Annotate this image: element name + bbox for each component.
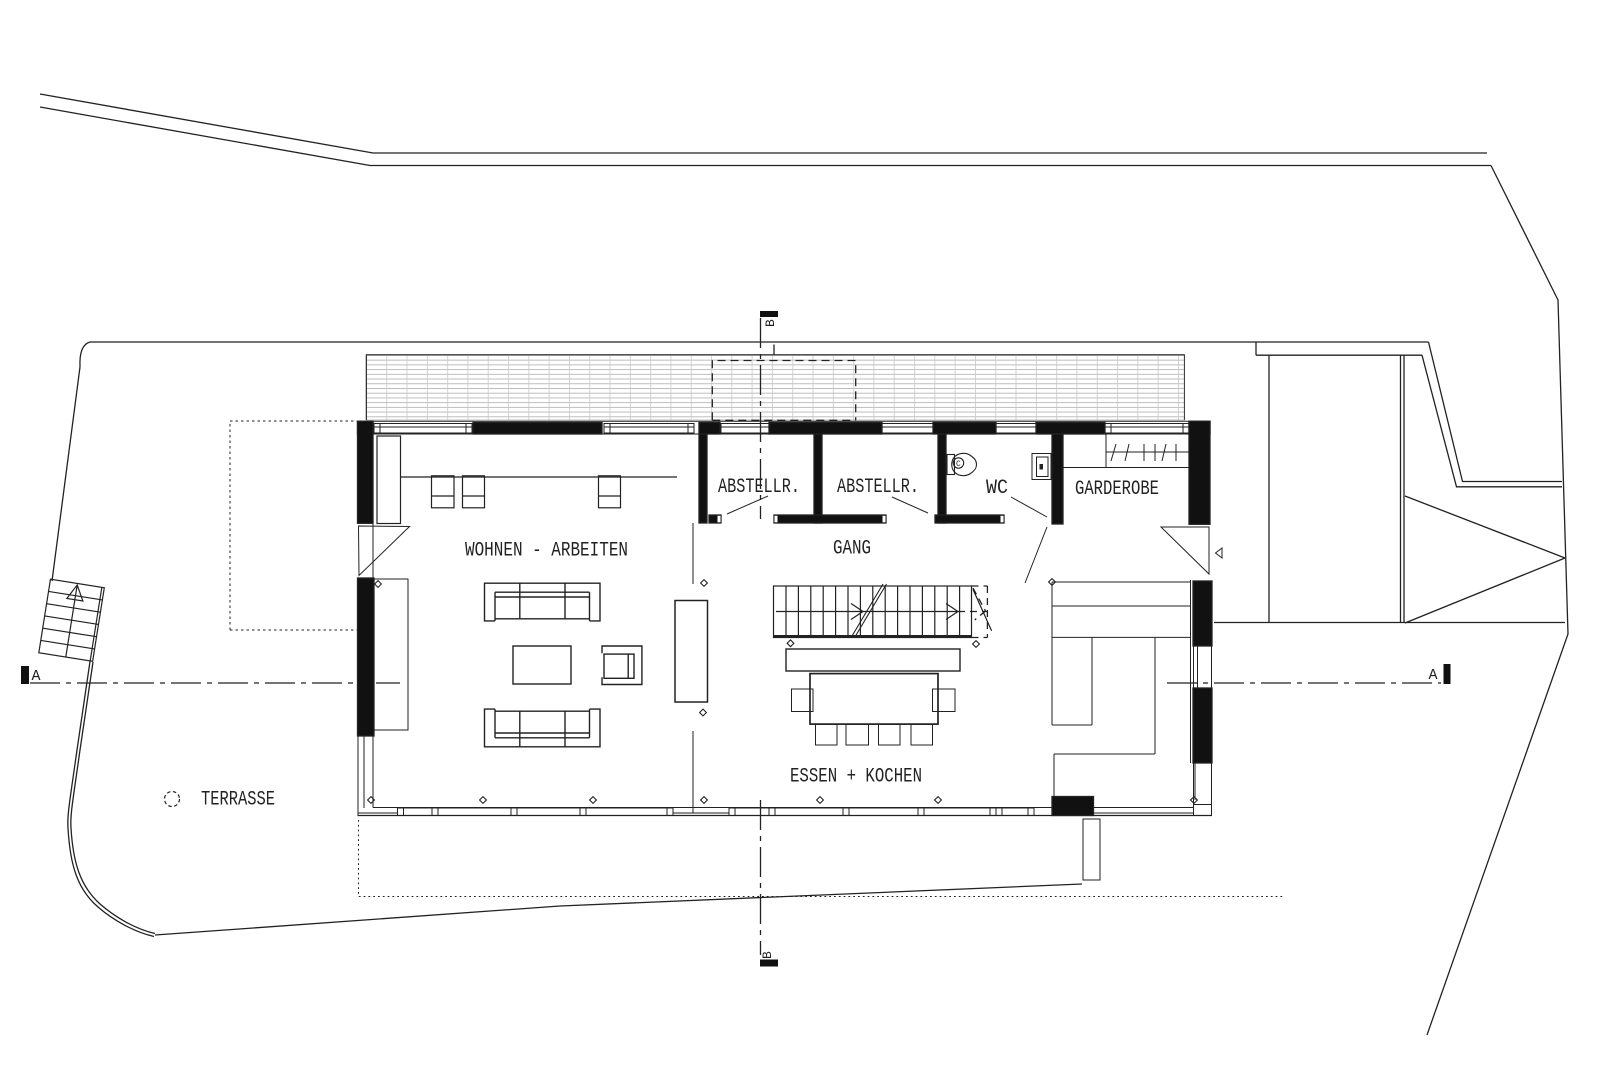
svg-text:A: A — [1429, 667, 1438, 684]
svg-text:ABSTELLR.: ABSTELLR. — [718, 476, 800, 499]
svg-text:ABSTELLR.: ABSTELLR. — [837, 476, 919, 499]
svg-text:WOHNEN - ARBEITEN: WOHNEN - ARBEITEN — [465, 540, 628, 563]
svg-text:WC: WC — [986, 477, 1008, 500]
svg-text:B: B — [760, 951, 775, 959]
svg-text:B: B — [763, 319, 778, 327]
svg-text:TERRASSE: TERRASSE — [201, 789, 275, 812]
svg-text:ESSEN + KOCHEN: ESSEN + KOCHEN — [790, 766, 922, 789]
svg-text:C: C — [956, 460, 961, 469]
svg-text:GARDEROBE: GARDEROBE — [1075, 478, 1159, 501]
svg-text:A: A — [32, 668, 41, 685]
svg-text:GANG: GANG — [833, 538, 871, 561]
